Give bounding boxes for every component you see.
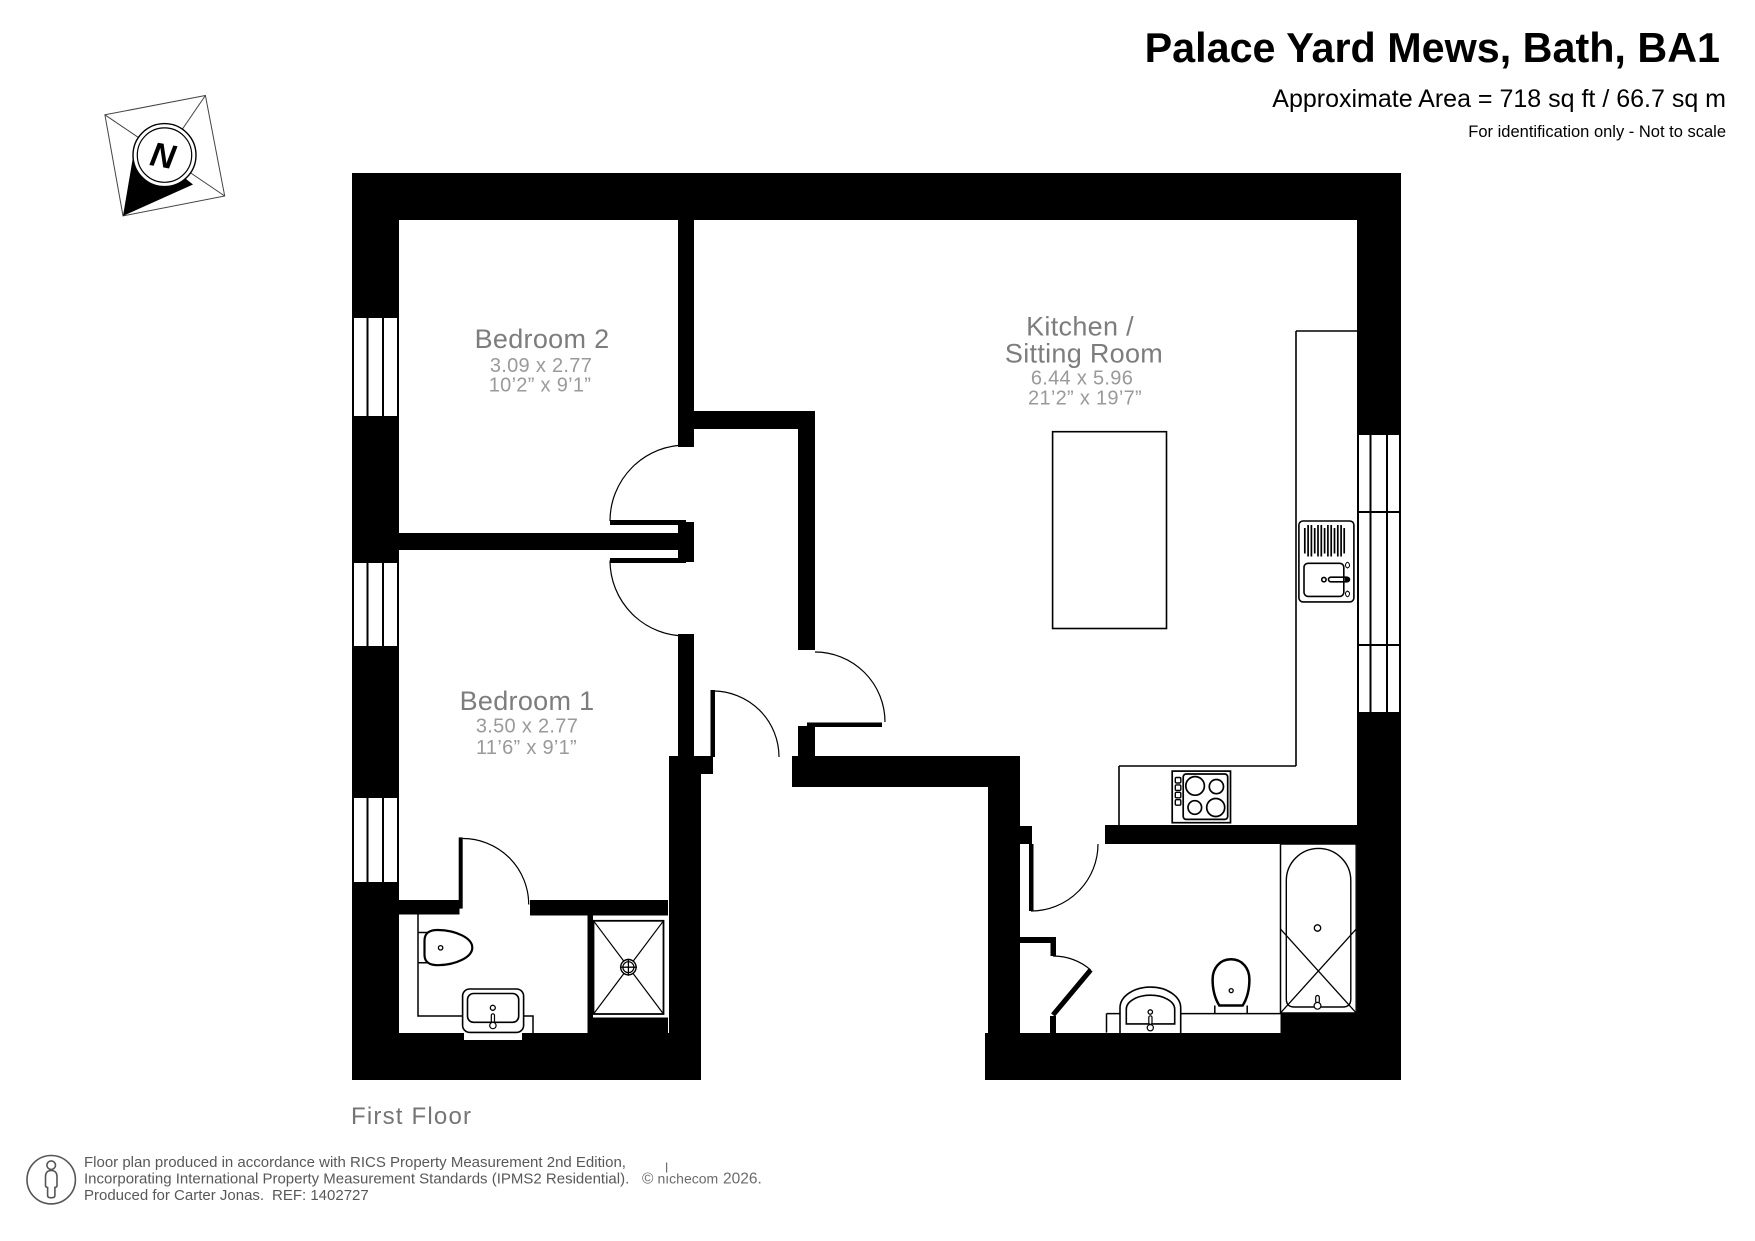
svg-text:©: © (642, 1171, 654, 1188)
svg-text:nıchecom: nıchecom (658, 1171, 719, 1187)
svg-text:Sitting Room: Sitting Room (1005, 339, 1163, 369)
svg-text:Floor plan produced in accorda: Floor plan produced in accordance with R… (84, 1154, 626, 1171)
svg-text:Approximate Area = 718 sq ft /: Approximate Area = 718 sq ft / 66.7 sq m (1272, 85, 1726, 113)
svg-text:Kitchen /: Kitchen / (1026, 312, 1134, 342)
svg-text:2026.: 2026. (723, 1171, 762, 1188)
svg-text:For identification only - Not: For identification only - Not to scale (1468, 123, 1726, 141)
svg-text:3.50 x 2.77: 3.50 x 2.77 (476, 716, 578, 738)
svg-text:11’6” x 9’1”: 11’6” x 9’1” (476, 737, 577, 759)
svg-text:Produced for Carter Jonas.: Produced for Carter Jonas. (84, 1187, 264, 1204)
svg-text:First Floor: First Floor (351, 1103, 472, 1130)
svg-text:21’2” x 19’7”: 21’2” x 19’7” (1028, 388, 1142, 410)
svg-text:6.44 x 5.96: 6.44 x 5.96 (1031, 368, 1133, 390)
svg-text:Palace Yard Mews, Bath, BA1: Palace Yard Mews, Bath, BA1 (1145, 25, 1720, 71)
svg-text:REF: 1402727: REF: 1402727 (272, 1187, 369, 1204)
svg-text:10’2” x 9’1”: 10’2” x 9’1” (489, 375, 592, 397)
svg-text:Bedroom 2: Bedroom 2 (475, 324, 610, 354)
svg-text:Bedroom 1: Bedroom 1 (460, 686, 595, 716)
svg-text:Incorporating International Pr: Incorporating International Property Mea… (84, 1171, 629, 1188)
